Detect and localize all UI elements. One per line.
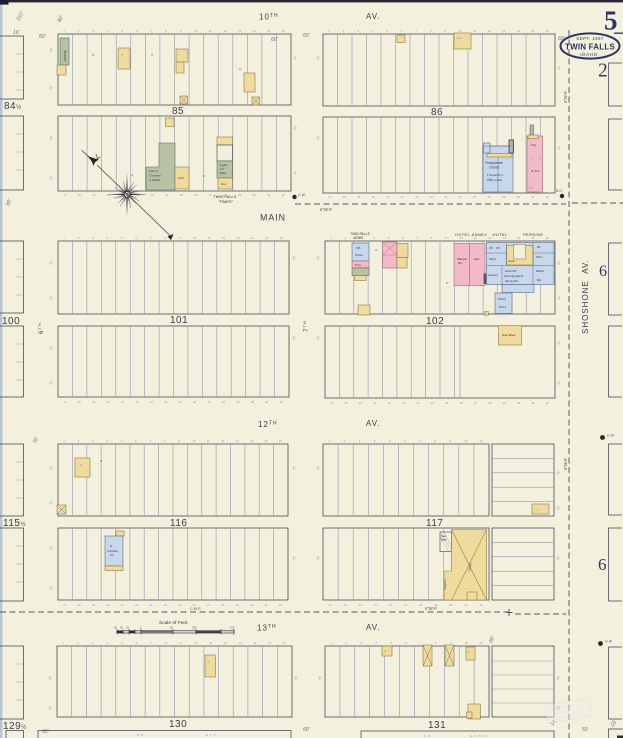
svg-text:12: 12 [329, 603, 332, 607]
svg-text:25: 25 [444, 401, 448, 405]
svg-text:2: 2 [598, 61, 608, 82]
svg-text:18: 18 [78, 193, 81, 197]
svg-text:12: 12 [224, 641, 227, 645]
svg-text:S: S [539, 156, 541, 160]
svg-text:25: 25 [179, 193, 183, 197]
svg-text:21: 21 [463, 603, 467, 607]
svg-text:32: 32 [279, 603, 282, 607]
svg-text:22: 22 [135, 193, 139, 197]
svg-text:Off.C.: Off.C. [536, 255, 543, 259]
svg-text:Pantry: Pantry [498, 297, 507, 301]
svg-text:19: 19 [92, 193, 95, 197]
svg-text:16: 16 [546, 236, 549, 240]
svg-text:17: 17 [63, 400, 66, 404]
svg-text:13: 13 [344, 603, 347, 607]
svg-text:117: 117 [426, 518, 443, 529]
svg-text:28: 28 [221, 400, 225, 404]
svg-text:17: 17 [328, 195, 331, 199]
svg-text:30: 30 [251, 400, 254, 404]
svg-text:Photo: Photo [355, 253, 363, 257]
svg-text:23: 23 [148, 603, 152, 607]
svg-text:14: 14 [253, 29, 256, 33]
svg-text:15: 15 [267, 29, 270, 33]
svg-text:TWIN FALLS: TWIN FALLS [565, 43, 615, 52]
svg-text:Barber: Barber [536, 269, 544, 273]
svg-text:AV.: AV. [366, 623, 381, 632]
svg-text:23: 23 [149, 400, 153, 404]
svg-text:102: 102 [426, 316, 444, 327]
svg-text:24: 24 [164, 193, 168, 197]
svg-text:18: 18 [345, 401, 348, 405]
svg-text:& Paints: & Paints [149, 178, 161, 182]
svg-text:Dining Rm.: Dining Rm. [505, 279, 519, 283]
svg-text:G.T.O.: G.T.O. [531, 169, 540, 173]
svg-text:K: K [468, 650, 470, 654]
svg-text:Stw'd: Stw'd [489, 257, 496, 261]
svg-text:Hotel: Hotel [508, 259, 515, 263]
svg-text:Laundry: Laundry [63, 50, 67, 62]
svg-text:18: 18 [343, 195, 346, 199]
svg-text:32: 32 [280, 400, 283, 404]
svg-text:6″W.P.: 6″W.P. [425, 606, 437, 611]
svg-text:NO: NO [137, 733, 145, 737]
svg-text:HOTEL: HOTEL [493, 233, 508, 237]
svg-text:10: 10 [193, 236, 196, 240]
svg-text:Mndy: Mndy [220, 171, 227, 175]
svg-text:24: 24 [163, 603, 167, 607]
svg-text:27: 27 [207, 400, 211, 404]
svg-text:23: 23 [415, 401, 419, 405]
svg-text:26: 26 [459, 401, 463, 405]
svg-text:18: 18 [78, 400, 81, 404]
svg-text:O.W.: O.W. [298, 193, 306, 197]
svg-text:12: 12 [224, 29, 227, 33]
svg-text:22: 22 [479, 603, 483, 607]
svg-text:17: 17 [63, 193, 66, 197]
svg-text:NEWS: NEWS [353, 236, 364, 240]
svg-text:D: D [121, 53, 123, 57]
svg-text:10: 10 [464, 439, 467, 443]
svg-text:28: 28 [487, 401, 491, 405]
svg-text:22: 22 [400, 195, 404, 199]
svg-text:19: 19 [92, 400, 95, 404]
svg-text:10: 10 [194, 29, 197, 33]
svg-text:10: 10 [459, 29, 462, 33]
svg-text:HOTEL ANNEX: HOTEL ANNEX [455, 233, 487, 237]
svg-text:12: 12 [222, 236, 225, 240]
svg-text:28: 28 [220, 603, 224, 607]
svg-text:Ch.: Ch. [110, 553, 115, 557]
svg-text:21: 21 [385, 195, 389, 199]
svg-text:25: 25 [443, 195, 447, 199]
svg-text:SEPT. 1907: SEPT. 1907 [576, 36, 603, 41]
svg-text:130: 130 [169, 719, 187, 730]
svg-text:13: 13 [238, 29, 241, 33]
svg-text:13: 13 [239, 641, 242, 645]
svg-text:31: 31 [531, 195, 534, 199]
svg-text:14: 14 [251, 236, 254, 240]
svg-text:14: 14 [253, 641, 256, 645]
svg-text:PERRINE: PERRINE [523, 233, 543, 237]
svg-text:25: 25 [177, 603, 181, 607]
svg-text:26: 26 [192, 400, 196, 404]
svg-text:30: 30 [517, 401, 520, 405]
svg-text:30: 30 [517, 195, 520, 199]
svg-text:EXPOS.: EXPOS. [470, 734, 492, 738]
svg-text:20: 20 [105, 603, 109, 607]
svg-text:16: 16 [389, 603, 392, 607]
svg-text:14: 14 [359, 603, 362, 607]
svg-text:S.H.: S.H. [457, 36, 462, 40]
svg-text:Hotel Off.: Hotel Off. [505, 269, 517, 273]
svg-text:24: 24 [430, 401, 434, 405]
svg-text:D: D [110, 544, 112, 548]
svg-text:60′: 60′ [303, 727, 311, 733]
svg-text:SHOSHONE AV.: SHOSHONE AV. [581, 259, 590, 334]
svg-text:131: 131 [428, 720, 446, 731]
svg-text:10: 10 [465, 641, 468, 645]
svg-text:27: 27 [208, 193, 212, 197]
svg-text:60′: 60′ [271, 37, 279, 43]
svg-text:Wagons: Wagons [443, 579, 447, 590]
svg-text:11: 11 [209, 29, 212, 33]
svg-text:Prtg.: Prtg. [355, 263, 362, 267]
svg-text:16: 16 [282, 29, 285, 33]
svg-text:11: 11 [208, 236, 211, 240]
svg-text:10: 10 [193, 439, 196, 443]
svg-text:23: 23 [414, 195, 418, 199]
svg-text:15: 15 [531, 29, 534, 33]
svg-text:S: S [537, 508, 539, 512]
svg-text:14: 14 [517, 29, 520, 33]
svg-text:12: 12 [221, 439, 224, 443]
svg-text:6: 6 [599, 263, 607, 280]
svg-text:29: 29 [237, 193, 241, 197]
svg-text:22: 22 [134, 400, 138, 404]
svg-text:17: 17 [404, 603, 407, 607]
svg-text:Crockery: Crockery [149, 174, 162, 178]
svg-text:Off.: Off. [356, 246, 361, 250]
svg-text:31: 31 [264, 603, 267, 607]
svg-text:32: 32 [546, 401, 549, 405]
svg-text:27: 27 [472, 195, 476, 199]
svg-text:26: 26 [193, 193, 197, 197]
svg-text:Furn.: Furn. [178, 176, 185, 180]
svg-text:6″W.P.: 6″W.P. [563, 91, 568, 103]
svg-text:60′: 60′ [558, 36, 566, 42]
svg-text:18: 18 [78, 603, 81, 607]
svg-text:12: 12 [488, 236, 491, 240]
svg-text:MAIN: MAIN [260, 213, 286, 223]
svg-text:27: 27 [473, 401, 477, 405]
svg-text:86: 86 [431, 107, 443, 118]
svg-text:6″W.P.: 6″W.P. [320, 207, 332, 212]
svg-text:AV.: AV. [366, 12, 381, 21]
svg-text:17: 17 [63, 603, 66, 607]
svg-text:Gro.: Gro. [221, 182, 227, 186]
svg-text:100: 100 [192, 626, 197, 630]
svg-text:Rm: Rm [458, 261, 463, 265]
svg-text:20: 20 [448, 603, 452, 607]
svg-text:S: S [531, 156, 533, 160]
svg-text:85: 85 [172, 106, 184, 117]
svg-text:Gas Shed: Gas Shed [502, 333, 516, 337]
svg-text:NO: NO [424, 734, 432, 738]
svg-text:14: 14 [250, 439, 253, 443]
svg-text:13: 13 [237, 236, 240, 240]
svg-text:D: D [80, 463, 82, 467]
svg-text:32: 32 [282, 193, 285, 197]
svg-text:Bldg: Bldg [441, 538, 447, 542]
svg-text:22: 22 [134, 603, 138, 607]
svg-text:50: 50 [582, 727, 588, 733]
svg-text:15: 15 [265, 236, 268, 240]
svg-text:Scale of Feet.: Scale of Feet. [159, 620, 189, 626]
svg-text:12: 12 [488, 29, 491, 33]
svg-text:and Ingredients: and Ingredients [504, 274, 524, 278]
svg-text:21: 21 [120, 603, 124, 607]
svg-text:21: 21 [387, 401, 391, 405]
svg-text:Tny: Tny [531, 143, 537, 147]
svg-text:20: 20 [372, 401, 376, 405]
svg-text:D: D [208, 660, 210, 664]
svg-text:17: 17 [330, 401, 333, 405]
svg-text:19: 19 [359, 401, 362, 405]
svg-text:15: 15 [268, 641, 271, 645]
svg-text:20: 20 [106, 193, 110, 197]
svg-text:60′: 60′ [42, 729, 50, 735]
svg-text:22: 22 [401, 401, 405, 405]
svg-text:AV.: AV. [366, 419, 381, 428]
svg-text:16: 16 [283, 641, 286, 645]
svg-text:13: 13 [236, 439, 239, 443]
svg-text:19: 19 [357, 195, 360, 199]
svg-text:116: 116 [170, 518, 187, 529]
svg-text:18: 18 [419, 603, 422, 607]
svg-text:16: 16 [279, 439, 282, 443]
svg-text:16: 16 [546, 29, 549, 33]
svg-text:150: 150 [230, 626, 235, 630]
svg-text:14: 14 [517, 236, 520, 240]
svg-text:O.W.: O.W. [607, 434, 615, 438]
svg-text:S: S [384, 649, 386, 653]
svg-text:31: 31 [265, 400, 268, 404]
svg-text:31: 31 [267, 193, 270, 197]
svg-text:28: 28 [487, 195, 491, 199]
svg-text:29: 29 [235, 603, 239, 607]
svg-text:25: 25 [178, 400, 182, 404]
svg-text:100: 100 [2, 316, 20, 327]
svg-text:24: 24 [429, 195, 433, 199]
svg-text:29: 29 [501, 195, 505, 199]
svg-text:6″W.P.: 6″W.P. [563, 458, 568, 470]
svg-text:19: 19 [92, 603, 95, 607]
svg-text:31: 31 [531, 401, 534, 405]
svg-text:EXP.: EXP. [206, 733, 220, 737]
svg-text:5: 5 [604, 6, 618, 36]
svg-text:Laundry: Laundry [488, 273, 499, 277]
svg-text:16: 16 [280, 236, 283, 240]
svg-text:16′: 16′ [13, 30, 21, 36]
svg-text:15: 15 [374, 603, 377, 607]
svg-text:Church: Church [489, 166, 500, 170]
svg-text:15: 15 [264, 439, 267, 443]
svg-text:23: 23 [150, 193, 154, 197]
svg-text:B.R.s: B.R.s [499, 305, 506, 309]
svg-text:20: 20 [371, 195, 375, 199]
svg-text:B.O.: B.O. [556, 189, 563, 193]
svg-text:Bil.: Bil. [537, 245, 541, 249]
svg-text:O.W.: O.W. [605, 640, 613, 644]
svg-text:32: 32 [546, 195, 549, 199]
svg-text:“TIMES”: “TIMES” [218, 199, 234, 204]
svg-text:60′: 60′ [39, 34, 47, 40]
svg-text:29: 29 [502, 401, 506, 405]
svg-text:6: 6 [598, 555, 607, 574]
svg-text:29: 29 [236, 400, 240, 404]
svg-text:20: 20 [106, 400, 110, 404]
svg-text:11: 11 [207, 439, 210, 443]
svg-text:Furn.&: Furn.& [149, 169, 158, 173]
svg-text:26: 26 [458, 195, 462, 199]
svg-text:Ann.: Ann. [473, 257, 480, 261]
svg-text:C.B.P.: C.B.P. [190, 606, 201, 611]
svg-text:Bar: Bar [537, 278, 541, 282]
svg-text:30: 30 [253, 193, 256, 197]
svg-text:10: 10 [195, 641, 198, 645]
svg-text:13: 13 [502, 29, 505, 33]
svg-text:27: 27 [206, 603, 210, 607]
svg-text:Presbyterian: Presbyterian [485, 161, 503, 165]
svg-text:New: New [441, 534, 446, 538]
svg-text:30: 30 [250, 603, 253, 607]
svg-text:Off.: Off. [496, 246, 501, 250]
svg-text:60′: 60′ [303, 33, 311, 39]
svg-text:21: 21 [120, 400, 124, 404]
svg-text:24: 24 [163, 400, 167, 404]
svg-text:101: 101 [170, 315, 188, 326]
svg-text:Off.: Off. [489, 246, 494, 250]
